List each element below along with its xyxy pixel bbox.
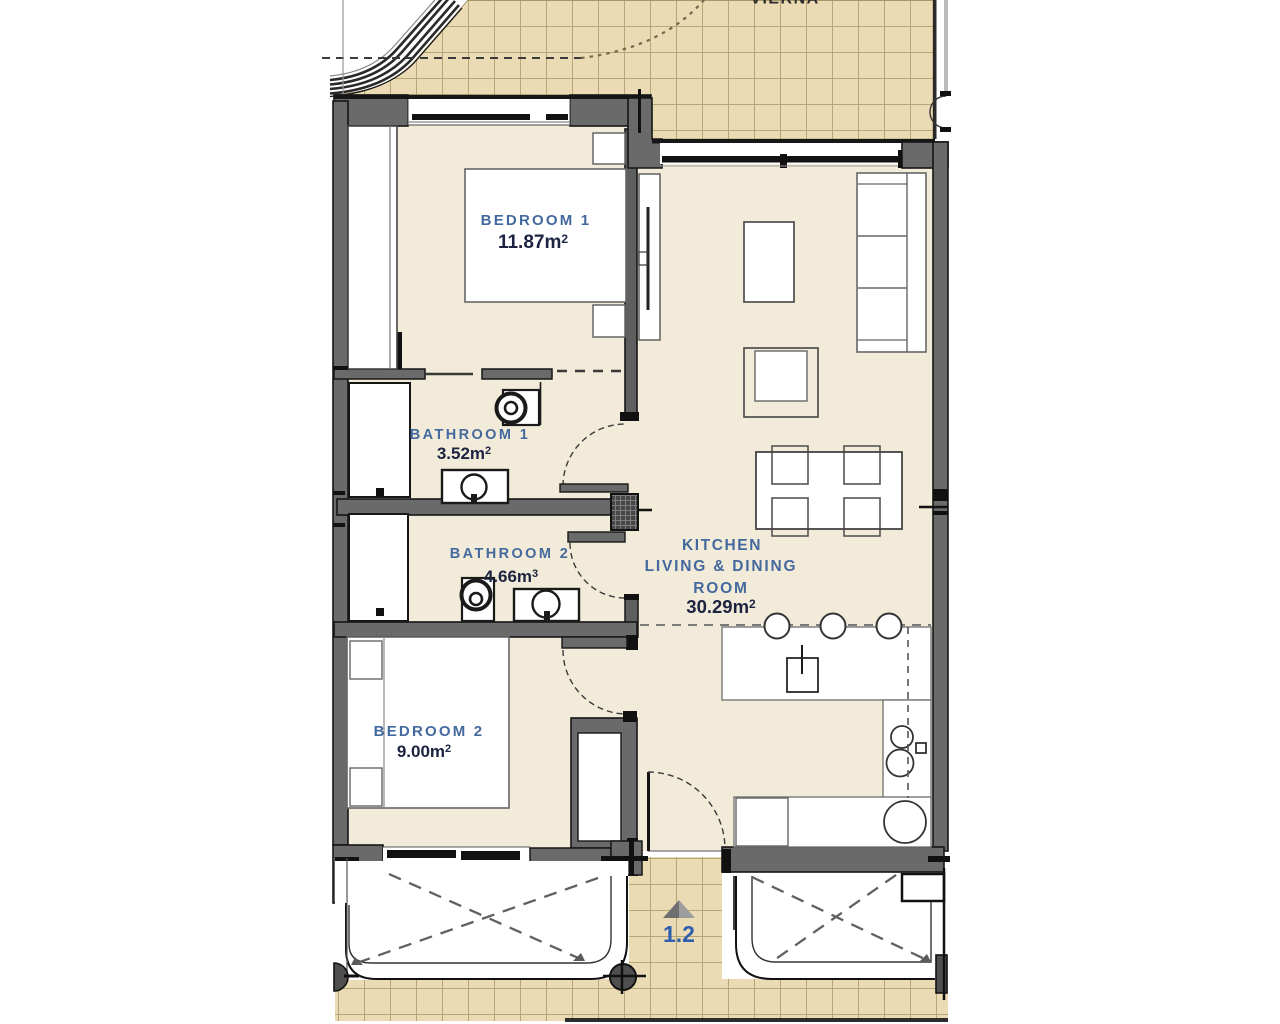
svg-text:BEDROOM 1: BEDROOM 1 [481,212,592,229]
svg-text:BEDROOM 2: BEDROOM 2 [374,723,485,740]
svg-text:LIVING & DINING: LIVING & DINING [645,558,798,575]
svg-text:11.87m2: 11.87m2 [498,232,568,253]
svg-text:30.29m2: 30.29m2 [686,596,756,617]
svg-text:ROOM: ROOM [693,580,748,597]
svg-text:4.66m3: 4.66m3 [484,567,538,586]
svg-text:KITCHEN: KITCHEN [682,537,762,554]
svg-text:BATHROOM 1: BATHROOM 1 [410,427,530,443]
svg-text:9.00m2: 9.00m2 [397,742,451,761]
svg-text:3.52m2: 3.52m2 [437,444,491,463]
svg-text:VIERNA: VIERNA [750,0,819,8]
svg-text:1.2: 1.2 [663,921,695,947]
svg-text:BATHROOM 2: BATHROOM 2 [450,546,570,562]
